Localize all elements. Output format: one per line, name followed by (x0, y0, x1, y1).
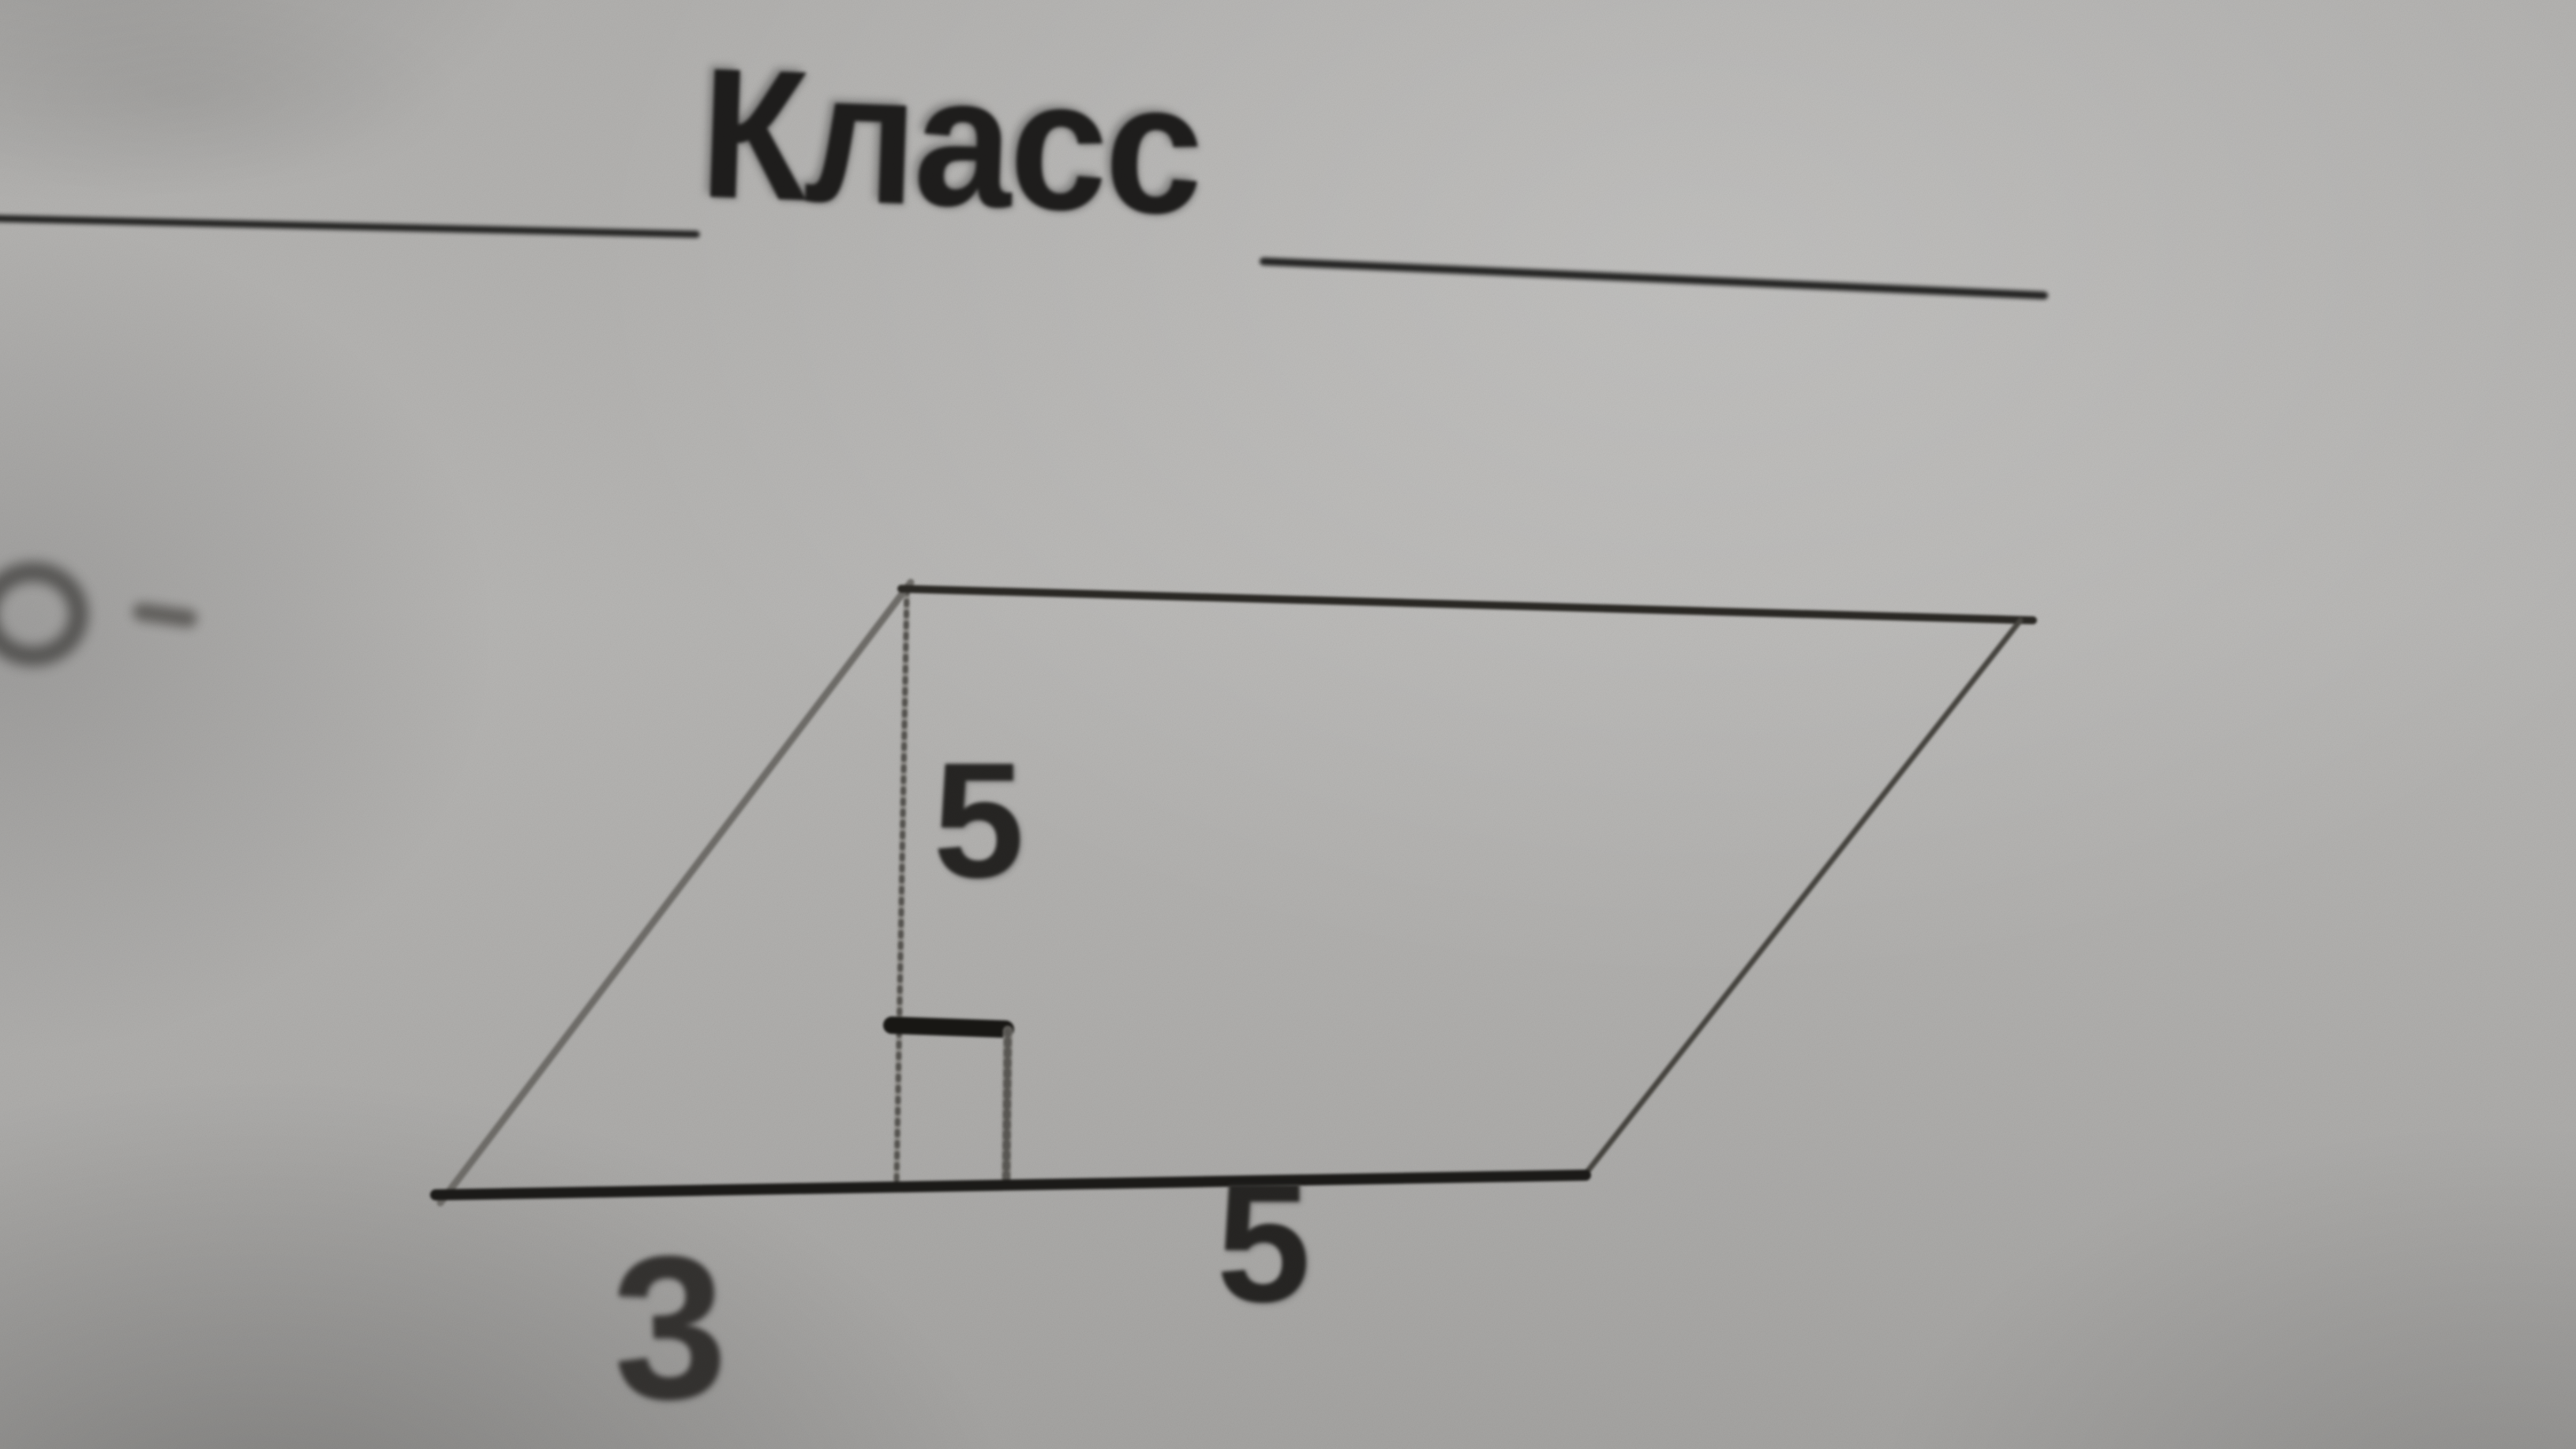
right-angle-mark-horizontal (892, 1025, 1005, 1029)
worksheet-photo: Класс 5 3 5 (0, 0, 2576, 1449)
base-left-segment-label: 3 (609, 1224, 729, 1432)
parallelogram-right-side (1584, 620, 2020, 1176)
base-right-segment-label: 5 (1216, 1158, 1311, 1327)
right-angle-mark-vertical-texture (1006, 1031, 1008, 1179)
parallelogram-left-side (440, 582, 911, 1203)
parallelogram-top-side (901, 589, 2033, 620)
height-label: 5 (933, 739, 1024, 903)
